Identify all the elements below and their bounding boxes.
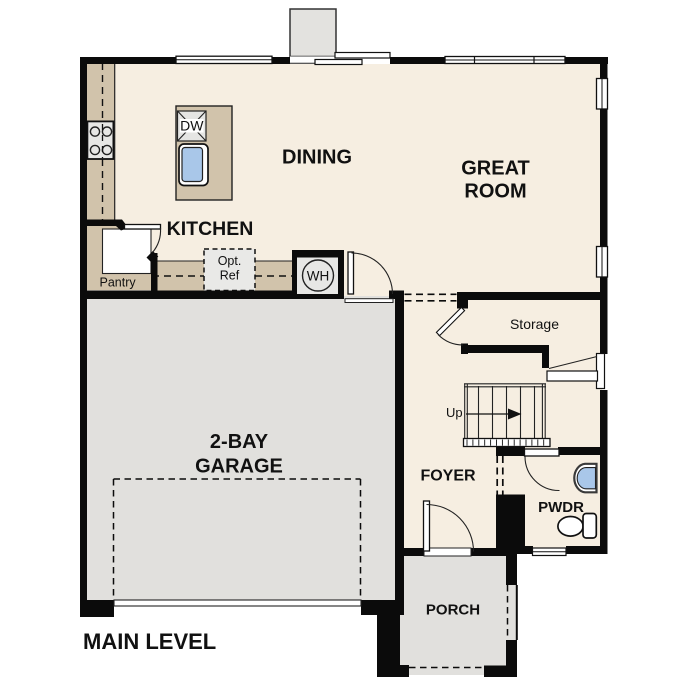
svg-text:FOYER: FOYER — [420, 468, 476, 485]
svg-text:Ref: Ref — [220, 269, 240, 283]
svg-text:PORCH: PORCH — [426, 602, 480, 619]
svg-text:GARAGE: GARAGE — [195, 456, 283, 478]
svg-text:Opt.: Opt. — [218, 254, 242, 268]
svg-text:2-BAY: 2-BAY — [210, 431, 269, 453]
svg-text:WH: WH — [307, 269, 330, 284]
svg-text:Pantry: Pantry — [100, 276, 137, 290]
svg-text:PWDR: PWDR — [538, 499, 584, 516]
svg-text:ROOM: ROOM — [464, 181, 526, 203]
svg-text:DW: DW — [180, 117, 204, 133]
svg-text:Up: Up — [446, 405, 463, 420]
svg-text:KITCHEN: KITCHEN — [167, 218, 254, 240]
svg-text:DINING: DINING — [282, 147, 352, 169]
svg-text:Storage: Storage — [510, 316, 559, 332]
svg-text:GREAT: GREAT — [461, 158, 530, 180]
svg-text:MAIN LEVEL: MAIN LEVEL — [83, 629, 216, 654]
